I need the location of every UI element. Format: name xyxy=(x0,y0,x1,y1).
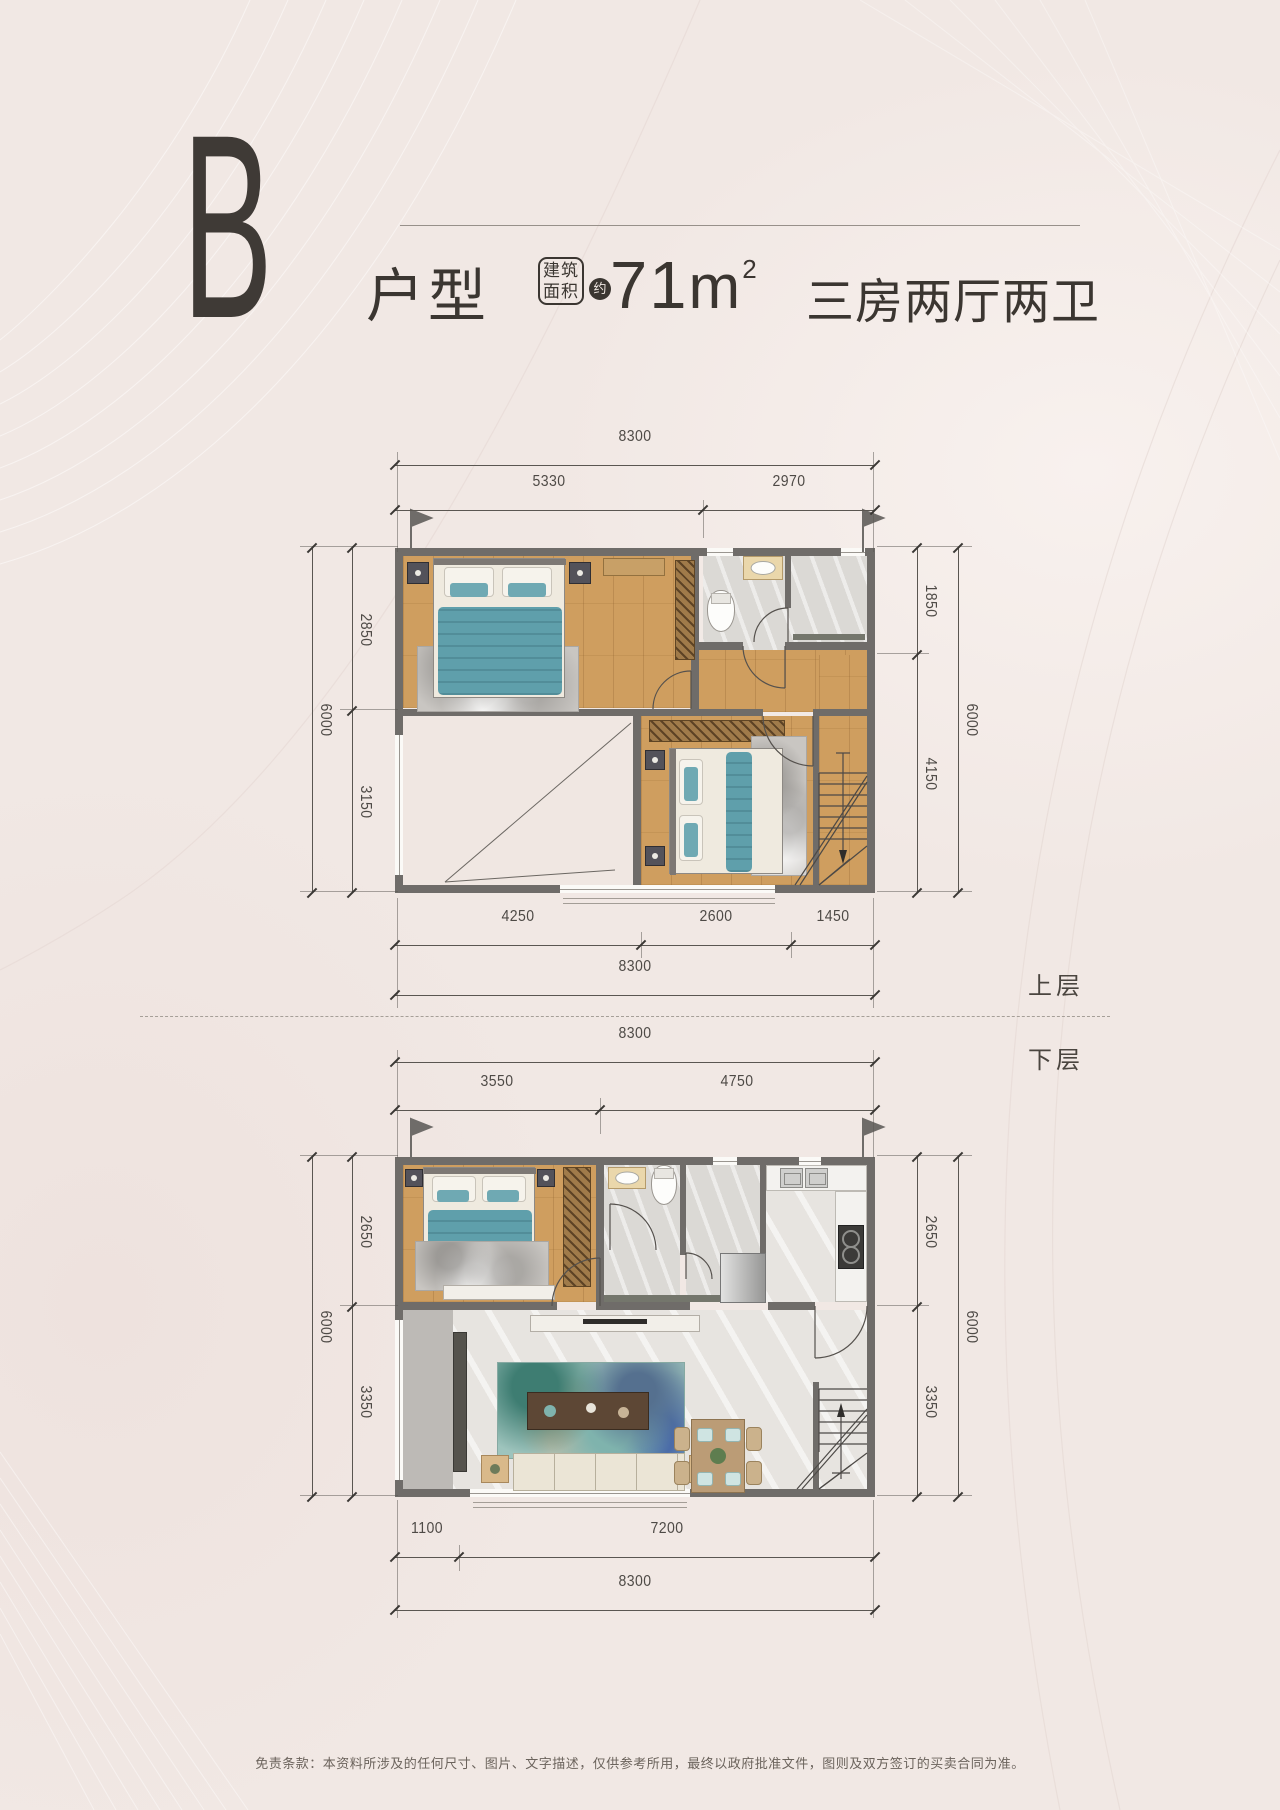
dim-label: 8300 xyxy=(618,1573,651,1591)
dim-linework xyxy=(917,548,918,893)
dim-linework xyxy=(873,898,874,1008)
dimension-annotations: 8300533029704250260014508300830035504750… xyxy=(0,0,1280,1810)
dim-label: 3350 xyxy=(921,1385,939,1418)
floorplan-poster-page: B 户型 建筑 面积 约 71 m 2 三房两厅两卫 xyxy=(0,0,1280,1810)
dim-label: 1100 xyxy=(411,1520,443,1538)
dim-linework xyxy=(958,548,959,893)
dim-label: 7200 xyxy=(650,1520,683,1538)
dim-linework xyxy=(917,1157,918,1497)
dim-linework xyxy=(395,465,875,466)
dim-label: 5330 xyxy=(532,473,565,491)
dim-label: 3150 xyxy=(356,785,374,818)
dim-linework xyxy=(395,1062,875,1063)
dim-linework xyxy=(395,1557,875,1558)
dim-linework xyxy=(600,1098,601,1134)
dim-linework xyxy=(352,1157,353,1497)
dim-label: 6000 xyxy=(962,1310,980,1343)
dim-label: 6000 xyxy=(962,703,980,736)
dim-linework xyxy=(312,548,313,893)
dim-linework xyxy=(395,945,875,946)
dim-linework xyxy=(352,548,353,893)
dim-label: 8300 xyxy=(618,428,651,446)
dim-label: 4250 xyxy=(501,908,534,926)
dim-linework xyxy=(703,500,704,538)
dim-linework xyxy=(397,452,398,552)
dim-linework xyxy=(340,1305,398,1306)
dim-linework xyxy=(397,1500,398,1618)
dim-label: 4750 xyxy=(720,1073,753,1091)
dim-label: 1850 xyxy=(921,584,939,617)
dim-linework xyxy=(873,1050,874,1158)
dim-linework xyxy=(958,1157,959,1497)
dim-label: 6000 xyxy=(316,703,334,736)
dim-linework xyxy=(395,510,875,511)
dim-linework xyxy=(395,1610,875,1611)
dim-label: 2970 xyxy=(772,473,805,491)
dim-label: 2600 xyxy=(699,908,732,926)
disclaimer-text: 免责条款：本资料所涉及的任何尺寸、图片、文字描述，仅供参考所用，最终以政府批准文… xyxy=(0,1753,1280,1772)
dim-linework xyxy=(395,995,875,996)
dim-linework xyxy=(877,1305,929,1306)
dim-label: 1450 xyxy=(816,908,849,926)
dim-label: 3350 xyxy=(356,1385,374,1418)
dim-linework xyxy=(340,709,398,710)
dim-label: 4150 xyxy=(921,757,939,790)
dim-linework xyxy=(395,1110,875,1111)
dim-label: 3550 xyxy=(480,1073,513,1091)
dim-linework xyxy=(877,653,929,654)
dim-label: 6000 xyxy=(316,1310,334,1343)
dim-label: 2850 xyxy=(356,613,374,646)
dim-label: 2650 xyxy=(921,1215,939,1248)
dim-label: 8300 xyxy=(618,958,651,976)
dim-label: 8300 xyxy=(618,1025,651,1043)
dim-label: 2650 xyxy=(356,1215,374,1248)
dim-linework xyxy=(312,1157,313,1497)
